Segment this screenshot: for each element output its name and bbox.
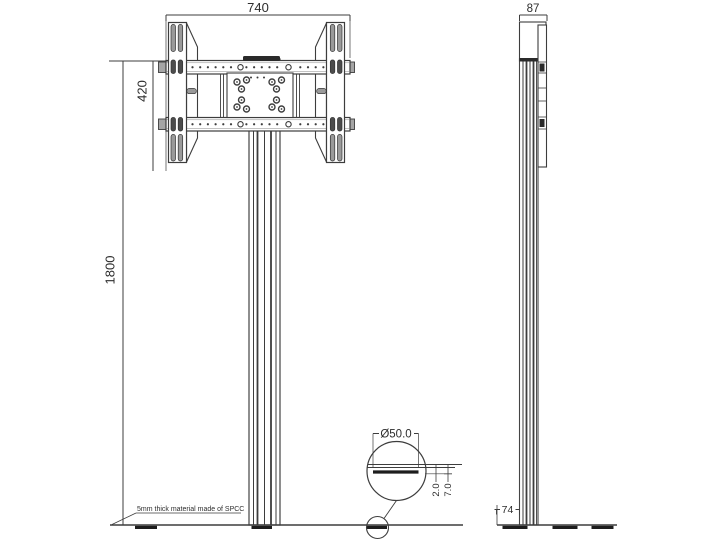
dim-87-label: 87 <box>527 3 540 15</box>
vesa-plate <box>221 73 300 118</box>
vesa-hole-center <box>236 81 238 83</box>
vesa-hole-center <box>241 88 243 90</box>
rail-hole-large <box>238 122 243 127</box>
dim-plate-thickness-label: 2.0 <box>431 483 442 496</box>
rail-hole <box>322 66 324 68</box>
rail-hole <box>299 66 301 68</box>
mounting-rail-top <box>159 61 355 75</box>
rail-hole <box>253 66 255 68</box>
rail-hole <box>268 66 270 68</box>
dim-1800: 1800 <box>103 61 124 525</box>
vesa-hole-center <box>246 79 248 81</box>
vesa-hole-center <box>276 99 278 101</box>
rail-hole <box>230 123 232 125</box>
rail-hole <box>315 123 317 125</box>
dim-foot-height: 7.0 <box>443 465 454 497</box>
mounting-rail-bottom <box>159 118 355 132</box>
rail-hole <box>299 123 301 125</box>
rail-hole <box>245 123 247 125</box>
rail-hole <box>215 66 217 68</box>
dim-foot-height-label: 7.0 <box>443 483 454 496</box>
front-base <box>110 525 463 529</box>
vesa-hole-center <box>281 79 283 81</box>
side-column <box>520 58 539 525</box>
dim-420: 420 <box>109 61 168 171</box>
rail-hole <box>307 66 309 68</box>
rail-hole-large <box>286 122 291 127</box>
material-note: 5mm thick material made of SPCC <box>112 506 244 525</box>
dim-87: 87 <box>520 3 548 21</box>
rail-hole <box>191 123 193 125</box>
rail-hole <box>268 123 270 125</box>
vesa-hole-center <box>246 108 248 110</box>
front-view: 5mm thick material made of SPCC 740 420 … <box>103 0 464 529</box>
side-bracket-plate <box>538 25 547 167</box>
rail-hole <box>307 123 309 125</box>
technical-drawing-canvas: 5mm thick material made of SPCC 740 420 … <box>0 0 720 540</box>
rail-hole <box>207 123 209 125</box>
rail-hole <box>315 66 317 68</box>
vesa-hole-center <box>271 81 273 83</box>
rail-hole <box>261 66 263 68</box>
dim-74: 74 <box>495 504 521 525</box>
rail-hole <box>191 66 193 68</box>
vesa-hole-center <box>276 88 278 90</box>
rail-hole <box>322 123 324 125</box>
vesa-hole-center <box>271 106 273 108</box>
rail-hole <box>276 66 278 68</box>
dim-74-label: 74 <box>502 504 514 516</box>
vesa-hole-center <box>236 106 238 108</box>
vesa-hole-center <box>241 99 243 101</box>
side-view: 87 74 <box>495 3 618 529</box>
rail-hole <box>261 123 263 125</box>
dim-740-label: 740 <box>247 0 269 15</box>
material-note-label: 5mm thick material made of SPCC <box>137 506 244 513</box>
rail-hole <box>222 66 224 68</box>
rail-hole <box>230 66 232 68</box>
rail-hole-large <box>238 65 243 70</box>
rail-hole <box>222 123 224 125</box>
tv-stand-drawing: 5mm thick material made of SPCC 740 420 … <box>0 0 720 540</box>
rail-hole-large <box>286 65 291 70</box>
rail-hole <box>245 66 247 68</box>
detail-view: Ø50.0 2.0 7.0 <box>367 428 463 539</box>
dim-foot-diameter-label: Ø50.0 <box>380 429 411 441</box>
dim-plate-thickness: 2.0 <box>431 465 442 497</box>
side-base <box>497 525 617 529</box>
dim-foot-diameter: Ø50.0 <box>373 428 419 468</box>
rail-hole <box>199 123 201 125</box>
dim-1800-label: 1800 <box>103 256 118 285</box>
rail-hole <box>215 123 217 125</box>
vesa-hole-center <box>281 108 283 110</box>
rail-hole <box>276 123 278 125</box>
rail-hole <box>253 123 255 125</box>
dim-420-label: 420 <box>135 80 150 102</box>
rail-hole <box>199 66 201 68</box>
column-clamp-bar <box>243 56 280 61</box>
rail-hole <box>207 66 209 68</box>
